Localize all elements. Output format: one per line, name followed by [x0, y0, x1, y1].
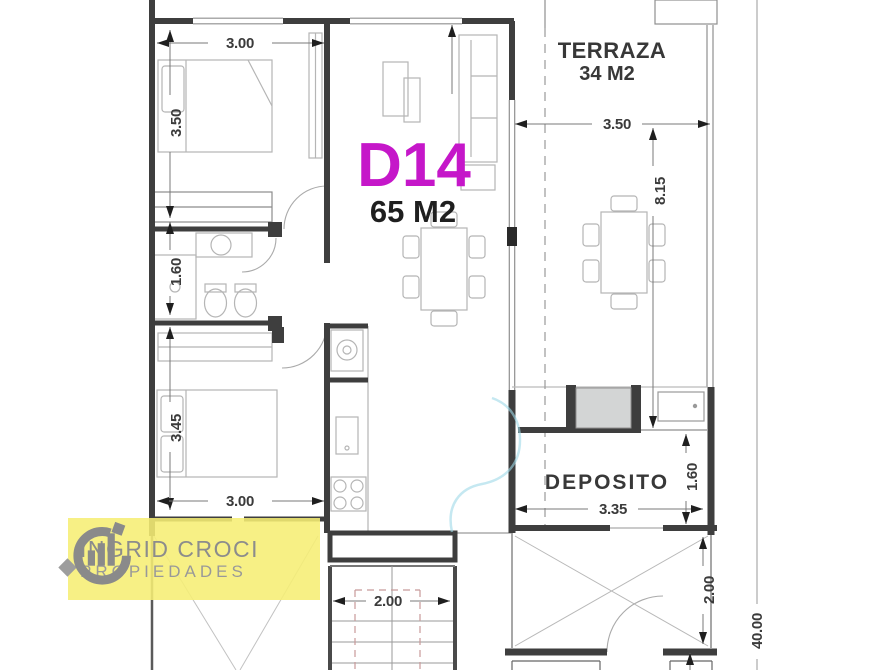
- furniture: [152, 33, 665, 533]
- floor-plan: TERRAZA 34 M2 D14 65 M2 DEPOSITO 3.00 3.…: [0, 0, 893, 670]
- dim-terraza-length: 8.15: [652, 177, 669, 205]
- dim-lot-length: 40.00: [749, 613, 766, 649]
- dim-bathroom-depth: 1.60: [168, 258, 185, 286]
- dim-terraza-width: 3.50: [603, 116, 631, 133]
- dim-bedroom1-width: 3.00: [226, 35, 254, 52]
- terraza-area-label: 34 M2: [579, 63, 635, 85]
- shaft-gray-box: [576, 388, 631, 428]
- brand-watermark-banner: INGRID CROCI PROPIEDADES: [68, 518, 320, 600]
- dim-deposito-depth: 1.60: [684, 463, 701, 491]
- terraza-label: TERRAZA: [558, 38, 667, 63]
- dim-void-depth: 2.00: [701, 576, 718, 604]
- deposito-label: DEPOSITO: [545, 471, 669, 494]
- dim-stairs-width: 2.00: [374, 593, 402, 610]
- bar-chart-c-logo-icon: [68, 518, 140, 590]
- unit-label: D14: [357, 131, 471, 200]
- dim-bedroom2-depth: 3.45: [168, 414, 185, 442]
- dim-bedroom1-depth: 3.50: [168, 109, 185, 137]
- dim-bedroom2-width: 3.00: [226, 493, 254, 510]
- dim-deposito-width: 3.35: [599, 501, 627, 518]
- unit-area-label: 65 M2: [370, 194, 456, 229]
